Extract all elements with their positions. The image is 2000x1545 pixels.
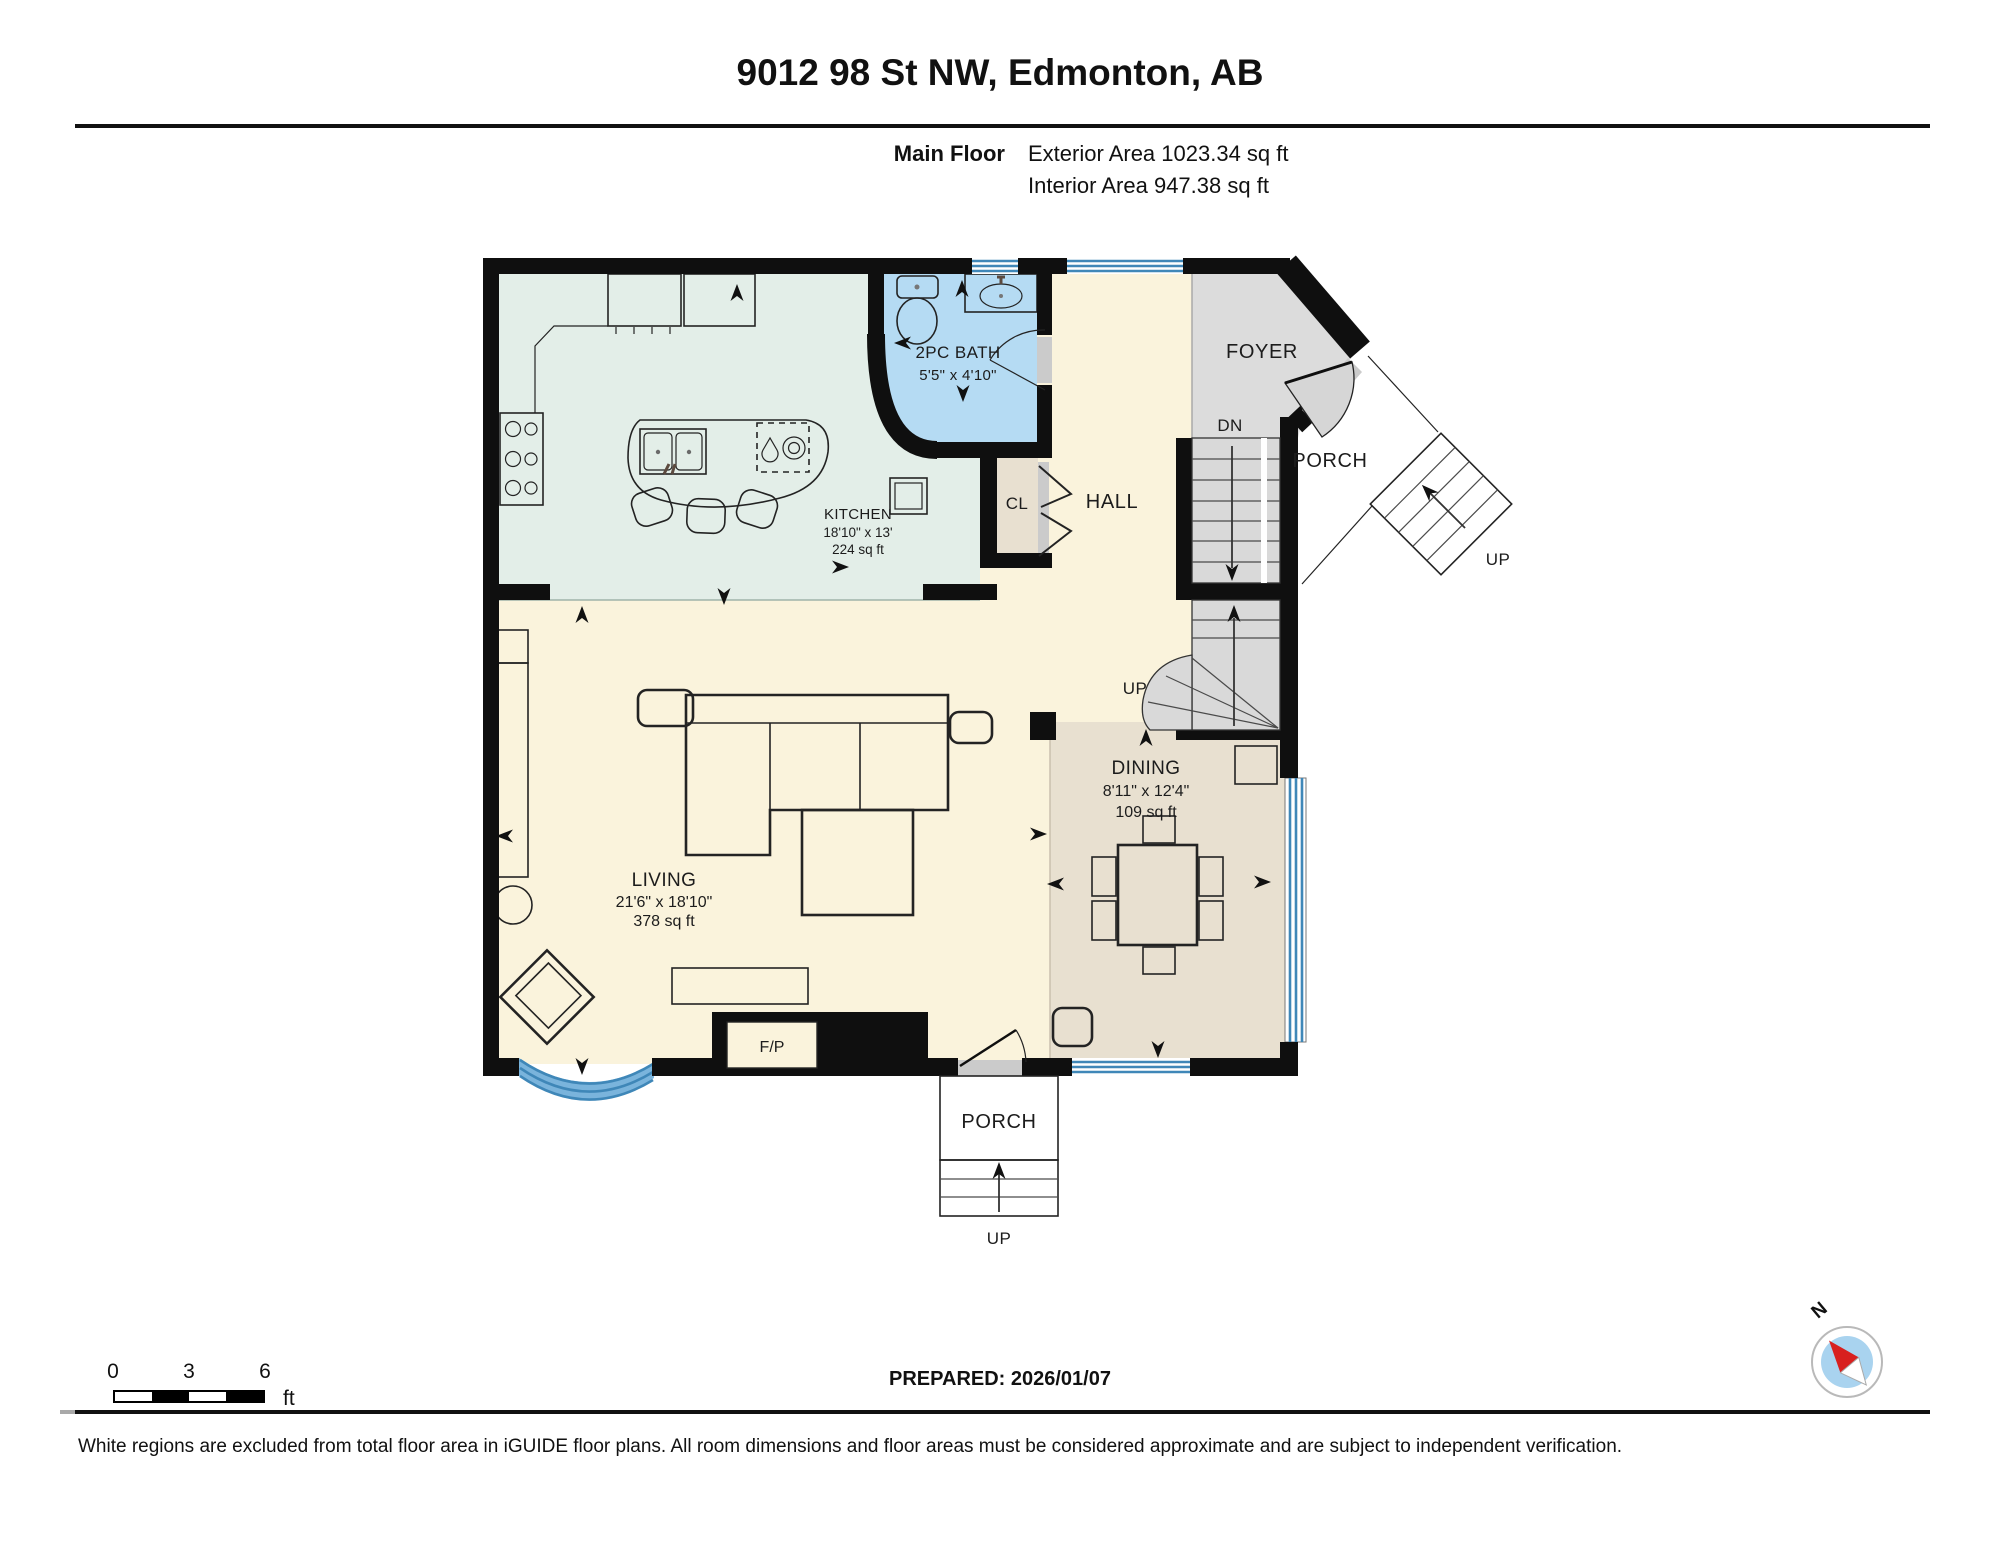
kitchen-dims: 18'10" x 13': [823, 525, 892, 540]
dining-dims: 8'11" x 12'4": [1103, 783, 1190, 800]
bath-label: 2PC BATH: [915, 343, 1000, 362]
compass-icon: [1811, 1326, 1883, 1398]
porch-top-up-label: UP: [1486, 550, 1510, 569]
porch-bottom-up-label: UP: [987, 1229, 1011, 1248]
living-label: LIVING: [632, 870, 697, 891]
kitchen-label: KITCHEN: [824, 506, 892, 523]
porch-bottom-structure: [940, 1076, 1058, 1216]
floorplan-page: 9012 98 St NW, Edmonton, AB Main Floor E…: [0, 0, 2000, 1545]
stairs-up-label: UP: [1123, 679, 1147, 698]
fireplace-label: F/P: [760, 1039, 785, 1056]
living-dims: 21'6" x 18'10": [616, 894, 713, 911]
stairs-dn-label: DN: [1217, 416, 1242, 435]
footer-divider: [75, 1410, 1930, 1414]
dining-area: 109 sq ft: [1115, 804, 1177, 821]
window-bath-top: [972, 258, 1018, 274]
window-hall-top: [1067, 258, 1183, 274]
closet-label: CL: [1006, 494, 1029, 513]
closet-sill: [1038, 462, 1049, 553]
scale-bar: [113, 1390, 265, 1403]
bath-dims: 5'5" x 4'10": [919, 367, 997, 384]
window-dining-bottom: [1072, 1058, 1190, 1075]
foyer-label: FOYER: [1226, 341, 1298, 363]
prepared-date: PREPARED: 2026/01/07: [0, 1368, 2000, 1391]
floorplan-drawing: KITCHEN 18'10" x 13' 224 sq ft 2PC BATH …: [0, 0, 2000, 1545]
hall-label: HALL: [1086, 491, 1138, 513]
window-dining-right: [1285, 778, 1306, 1042]
kitchen-area: 224 sq ft: [832, 542, 884, 557]
bay-window: [519, 1058, 654, 1101]
disclaimer-text: White regions are excluded from total fl…: [78, 1436, 1838, 1458]
porch-top-label: PORCH: [1292, 450, 1367, 472]
dining-label: DINING: [1112, 758, 1181, 779]
living-area: 378 sq ft: [633, 913, 695, 930]
porch-bottom-label: PORCH: [961, 1111, 1036, 1133]
